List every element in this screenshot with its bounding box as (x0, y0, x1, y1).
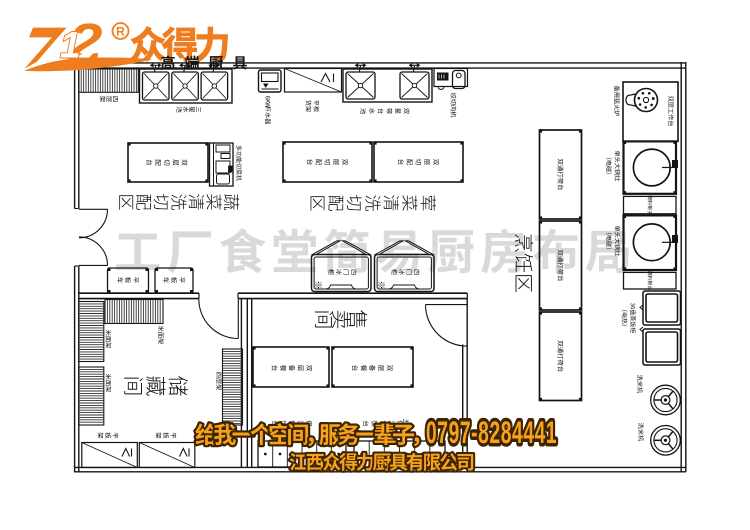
svg-text:1: 1 (60, 25, 81, 66)
svg-text:R: R (116, 24, 125, 38)
svg-text:0797-8284441: 0797-8284441 (426, 414, 557, 450)
